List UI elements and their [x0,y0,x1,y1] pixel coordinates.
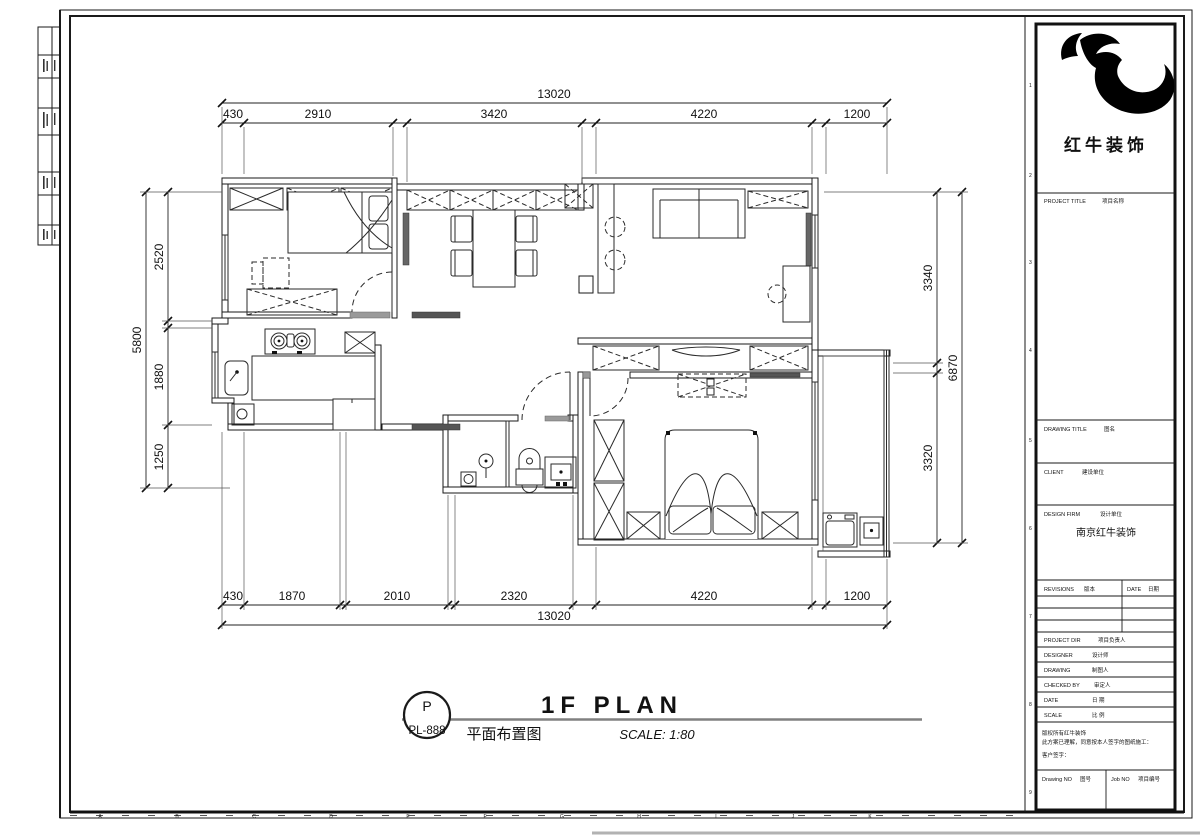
ruler-letter: C [252,814,256,820]
dim-label: 2320 [501,589,528,603]
window-living-right [812,215,818,268]
ruler-letter: D [329,814,333,820]
ruler-letter: H [637,814,641,820]
ruler-letter: G [560,814,564,820]
dim-label: 1200 [844,107,871,121]
tb-label: 版本 [1084,585,1096,593]
dining-table [473,210,515,287]
bottom-ruler: A B C D E F G H I J K [98,814,872,820]
row-number: 7 [1029,614,1032,620]
dimensions: 13020 430 2910 3420 4220 1200 [130,87,968,629]
kitchen-meter [232,404,254,425]
tb-label: Drawing NO [1042,777,1073,783]
tb-label: CLIENT [1044,470,1064,476]
ruler-letter: F [483,814,486,820]
tb-label: PROJECT DIR [1044,638,1081,644]
dim-label: 1250 [152,443,166,470]
tb-label: 项目名称 [1102,197,1125,205]
tb-label: 比 例 [1092,711,1105,719]
tb-label: Job NO [1111,777,1130,783]
window-bedroom2-balcony [812,382,818,500]
bed-single [288,192,392,253]
entry-counter [598,184,625,293]
dim-label: 6870 [946,354,960,381]
floor-drain [461,472,476,486]
row-number: 4 [1029,348,1032,354]
tb-label: DRAWING [1044,668,1070,674]
radiator-dining [403,213,409,265]
dim-label: 1870 [279,589,306,603]
design-firm-value: 南京红牛装饰 [1076,526,1136,539]
tb-label: PROJECT TITLE [1044,199,1086,205]
company-name: 红牛装饰 [1064,135,1148,155]
washing-machine [823,513,857,547]
tb-label: 建设单位 [1082,468,1105,476]
kitchen-furniture [225,329,375,430]
plan-title-cn: 平面布置图 [466,726,541,743]
tb-label: 设计单位 [1100,510,1123,518]
dim-label: 13020 [537,609,571,623]
tb-label: 项目编号 [1138,775,1161,783]
ruler-letter: K [868,814,872,820]
tb-label: 日期 [1148,586,1160,593]
tb-label: DRAWING TITLE [1044,427,1087,433]
bathroom-furniture [461,421,576,493]
radiator-hall-lower [412,424,460,430]
ruler-letter: J [792,814,795,820]
tb-label: CHECKED BY [1044,683,1080,689]
bar-stool [605,250,625,270]
row-number: 8 [1029,702,1032,708]
plan-bubble-number: PL-888 [408,725,445,737]
tb-label: 图号 [1080,775,1092,783]
tb-label: SCALE [1044,713,1062,719]
tb-label: REVISIONS [1044,587,1074,593]
threshold-bedroom1 [350,312,390,318]
floor-plan-drawing: A B C D E F G H I J K [0,0,1200,840]
tb-label: 审定人 [1094,681,1111,689]
balcony-sink [860,517,883,545]
ruler-letter: A [98,814,102,820]
kitchen-counter [252,356,375,400]
tb-note: 此方案已理解，同意按本人签字的图纸施工： [1042,738,1152,746]
dim-label: 3420 [481,107,508,121]
dim-label: 430 [223,107,243,121]
balcony-furniture [823,513,883,547]
dim-label: 2910 [305,107,332,121]
door-bathroom [522,372,570,420]
gas-stove [265,329,315,354]
dim-bottom: 430 1870 2010 2320 4220 1200 13020 [218,432,891,629]
row-number: 2 [1029,173,1032,179]
window-bedroom1-left [222,235,228,300]
drawing-sheet: A B C D E F G H I J K [0,0,1200,840]
tv-icon [672,347,740,350]
dim-label: 4220 [691,107,718,121]
radiator-living [806,213,811,266]
tv-cabinet-row [593,346,808,370]
row-number: 1 [1029,83,1032,89]
plan-scale: SCALE: 1:80 [619,727,695,742]
tb-note: 客户签字： [1042,751,1070,759]
shower-head-icon [479,454,493,478]
ruler-letter: E [406,814,410,820]
kitchen-sink [225,361,248,395]
dim-label: 3320 [921,444,935,471]
window-kitchen-left [212,352,218,398]
row-number: 5 [1029,438,1032,444]
tb-label: 制图人 [1092,666,1109,674]
desk-dashed [252,258,289,288]
fridge [333,399,375,430]
dining-furniture [407,190,578,287]
tb-label: DATE [1044,698,1059,704]
radiator-bedroom2 [750,373,800,377]
threshold-bathroom [545,416,569,421]
desk [768,266,810,322]
door-bedroom2 [590,378,628,416]
tb-label: 日 期 [1092,697,1105,704]
tb-label: DATE [1127,587,1142,593]
tb-note: 版权所有红牛装饰 [1042,729,1087,737]
radiator-hall-upper [412,312,460,318]
dim-label: 2520 [152,243,166,270]
sofa [653,189,745,238]
plan-bubble-letter: P [422,698,431,714]
tb-label: 图名 [1104,425,1115,433]
row-number: 3 [1029,260,1032,266]
caption: P PL-888 1F PLAN 平面布置图 SCALE: 1:80 [402,692,922,743]
ruler-letter: I [715,814,716,820]
row-number: 9 [1029,790,1032,796]
plan-title-en: 1F PLAN [541,692,683,719]
threshold-bedroom2 [583,372,590,378]
tb-label: 项目负责人 [1098,636,1126,644]
dim-label: 3340 [921,264,935,291]
shower-partition [506,421,509,487]
dim-top: 13020 430 2910 3420 4220 1200 [218,87,891,182]
dim-label: 430 [223,589,243,603]
tb-label: DESIGNER [1044,653,1073,659]
bar-stool [605,217,625,237]
bedroom1-furniture [230,188,392,315]
dim-label: 13020 [537,87,571,101]
door-bedroom1 [352,272,392,312]
dim-label: 1880 [152,363,166,390]
dim-label: 2010 [384,589,411,603]
ruler-letter: B [175,814,179,820]
dim-label: 1200 [844,589,871,603]
row-number: 6 [1029,526,1032,532]
title-block: 红牛装饰 PROJECT TITLE 项目名称 DRAWING TITLE 图名… [1029,24,1175,810]
dim-right: 3340 3320 6870 [824,188,968,547]
left-margin-strip [38,27,60,245]
tb-label: DESIGN FIRM [1044,512,1080,518]
row-numbers: 1 2 3 4 5 6 7 8 9 [1029,83,1032,796]
bedroom2-furniture [594,374,798,540]
wardrobe [594,420,624,540]
bed-double [665,430,758,539]
dresser-crossed [247,289,337,315]
toilet [516,449,543,493]
tb-label: 设计师 [1092,651,1109,659]
dim-label: 4220 [691,589,718,603]
vanity-sink [545,457,576,488]
dim-label: 5800 [130,326,144,353]
